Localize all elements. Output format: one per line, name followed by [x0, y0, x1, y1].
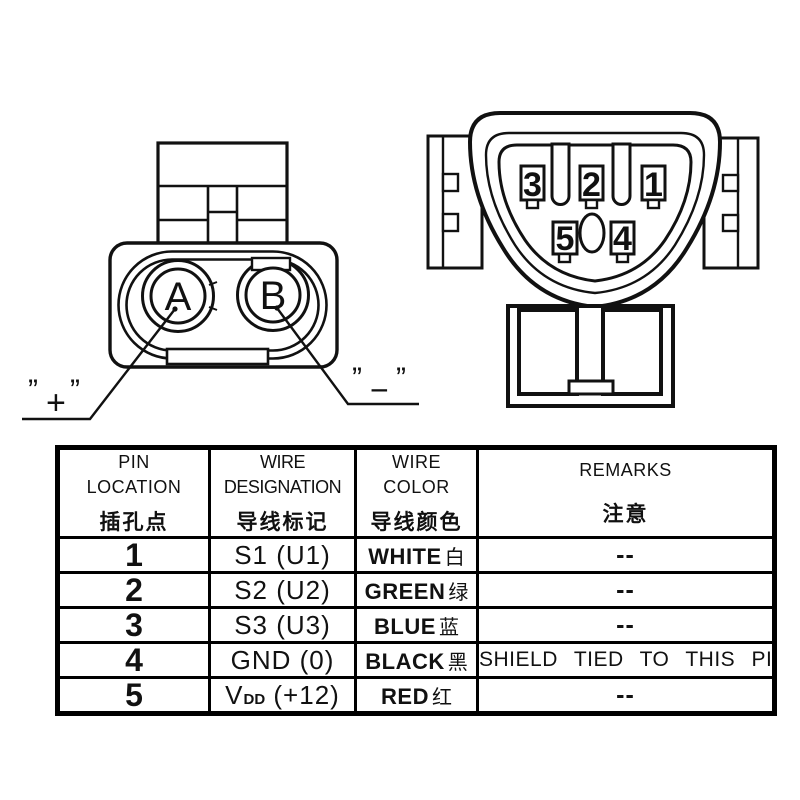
- header-wire-designation-zh: 导线标记: [211, 506, 354, 536]
- table-row: 3 S3 (U3) BLUE蓝 --: [58, 608, 775, 643]
- wire-color-cell: RED红: [356, 678, 478, 714]
- five-pin-shell: [470, 113, 720, 307]
- header-remarks: REMARKS 注意: [478, 448, 775, 538]
- color-zh: 绿: [448, 582, 468, 604]
- header-wire-color-en: WIRE COLOR: [357, 450, 476, 499]
- remarks-text: SHIELD TIED TO THIS PIN: [479, 648, 775, 671]
- table-row: 4 GND (0) BLACK黑 SHIELD TIED TO THIS PIN: [58, 643, 775, 678]
- pin-2-label: 2: [582, 166, 601, 204]
- two-pin-latch-tab: [158, 143, 287, 247]
- designation-text: V: [225, 680, 243, 710]
- header-wire-color: WIRE COLOR 导线颜色: [356, 448, 478, 538]
- designation-text: S2 (U2): [234, 575, 331, 605]
- positive-terminal-label: ” + ”: [28, 374, 80, 422]
- designation-text: GND (0): [231, 645, 335, 675]
- positive-sign: +: [46, 384, 66, 422]
- color-en: RED: [381, 684, 429, 709]
- designation-sub: DD: [244, 691, 266, 708]
- pin-b-label: B: [260, 274, 287, 318]
- wire-designation-cell: GND (0): [210, 643, 356, 678]
- header-wire-designation: WIRE DESIGNATION 导线标记: [210, 448, 356, 538]
- pin-location-cell: 1: [58, 538, 210, 573]
- table-row: 5 VDD (+12) RED红 --: [58, 678, 775, 714]
- five-pin-lower-housing: [508, 306, 673, 406]
- negative-close-quote: ”: [396, 362, 406, 395]
- pin-number: 5: [125, 678, 143, 714]
- designation-text: S3 (U3): [234, 610, 331, 640]
- positive-open-quote: ”: [28, 374, 38, 407]
- table-row: 1 S1 (U1) WHITE白 --: [58, 538, 775, 573]
- pin-location-cell: 5: [58, 678, 210, 714]
- wire-designation-cell: VDD (+12): [210, 678, 356, 714]
- color-en: WHITE: [368, 544, 441, 569]
- table-row: 2 S2 (U2) GREEN绿 --: [58, 573, 775, 608]
- remarks-cell: --: [478, 608, 775, 643]
- pin-number: 1: [125, 538, 143, 573]
- remarks-text: --: [616, 681, 635, 709]
- negative-open-quote: ”: [352, 362, 362, 395]
- wire-color-cell: BLACK黑: [356, 643, 478, 678]
- header-pin-location-zh: 插孔点: [60, 506, 208, 536]
- header-pin-location-en: PIN LOCATION: [60, 450, 208, 499]
- color-en: BLACK: [365, 649, 445, 674]
- negative-terminal-label: ” − ”: [352, 362, 406, 408]
- wire-color-cell: GREEN绿: [356, 573, 478, 608]
- pin-4-label: 4: [613, 220, 632, 258]
- wire-color-cell: WHITE白: [356, 538, 478, 573]
- remarks-cell: SHIELD TIED TO THIS PIN: [478, 643, 775, 678]
- wire-designation-cell: S3 (U3): [210, 608, 356, 643]
- wiring-diagram-page: A B ” + ” ” − ”: [0, 0, 800, 800]
- color-zh: 黑: [448, 652, 468, 674]
- color-zh: 红: [432, 687, 452, 709]
- color-zh: 蓝: [439, 617, 459, 639]
- pin-5-label: 5: [556, 220, 575, 258]
- header-pin-location: PIN LOCATION 插孔点: [58, 448, 210, 538]
- color-zh: 白: [445, 547, 465, 569]
- five-pin-connector-diagram: 3 2 1 5 4: [428, 113, 758, 406]
- remarks-cell: --: [478, 538, 775, 573]
- table-header-row: PIN LOCATION 插孔点 WIRE DESIGNATION 导线标记 W…: [58, 448, 775, 538]
- remarks-text: --: [616, 611, 635, 639]
- designation-post: (+12): [265, 680, 340, 710]
- header-remarks-zh: 注意: [479, 498, 772, 528]
- two-pin-connector-diagram: A B ” + ” ” − ”: [22, 143, 419, 422]
- header-wire-designation-en: WIRE DESIGNATION: [211, 450, 354, 499]
- positive-close-quote: ”: [70, 374, 80, 407]
- header-remarks-en: REMARKS: [479, 458, 772, 482]
- pin-location-cell: 2: [58, 573, 210, 608]
- wiring-table: PIN LOCATION 插孔点 WIRE DESIGNATION 导线标记 W…: [55, 445, 777, 716]
- pin-number: 2: [125, 573, 143, 608]
- wire-designation-cell: S1 (U1): [210, 538, 356, 573]
- designation-text: S1 (U1): [234, 540, 331, 570]
- pin-a-label: A: [165, 275, 192, 319]
- pin-location-cell: 3: [58, 608, 210, 643]
- connector-diagrams: A B ” + ” ” − ”: [0, 0, 800, 445]
- remarks-text: --: [616, 576, 635, 604]
- pin-location-cell: 4: [58, 643, 210, 678]
- wire-color-cell: BLUE蓝: [356, 608, 478, 643]
- negative-sign: −: [370, 372, 389, 408]
- color-en: BLUE: [374, 614, 436, 639]
- pin-number: 3: [125, 608, 143, 643]
- header-wire-color-zh: 导线颜色: [357, 506, 476, 536]
- wire-designation-cell: S2 (U2): [210, 573, 356, 608]
- pin-1-label: 1: [644, 166, 663, 204]
- pin-3-label: 3: [523, 166, 542, 204]
- pin-number: 4: [125, 643, 143, 678]
- color-en: GREEN: [365, 579, 446, 604]
- remarks-cell: --: [478, 573, 775, 608]
- remarks-text: --: [616, 541, 635, 569]
- remarks-cell: --: [478, 678, 775, 714]
